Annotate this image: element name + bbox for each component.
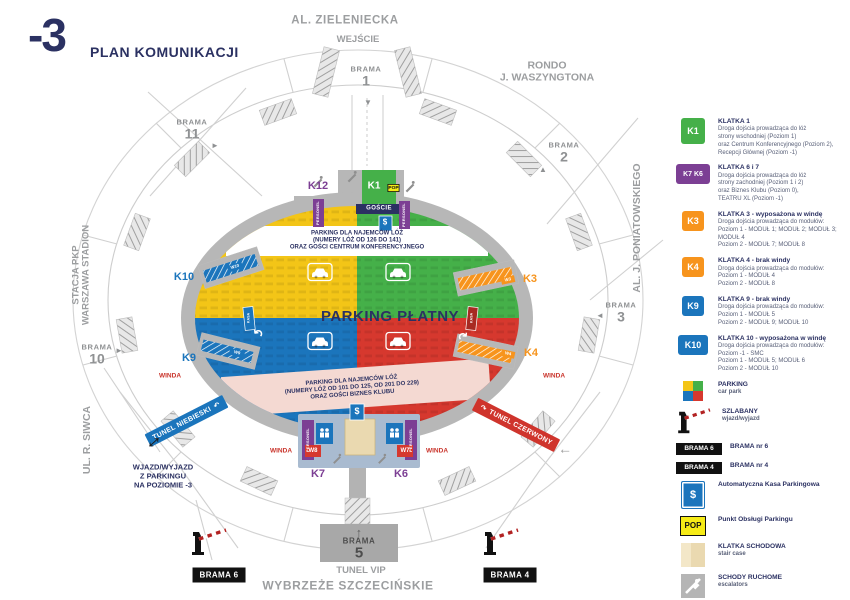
legend-line: Poziom 2 - MODUŁ 10 — [718, 366, 848, 374]
k3-icon: K3 — [676, 211, 710, 231]
tunel-vip-label: TUNEL VIP — [336, 566, 385, 576]
legend-title: KLATKA 10 - wyposażona w windę — [718, 335, 848, 343]
winda-k4-label: WINDA — [543, 372, 565, 379]
legend-title: KLATKA SCHODOWA — [718, 543, 848, 551]
barrier-gate4 — [484, 530, 518, 555]
legend-line: Poziom 2 - MODUŁ 8 — [718, 281, 848, 289]
personel-ne: PERSONEL — [402, 203, 407, 227]
legend-line: strony zachodniej (Poziom 1 i 2) — [718, 180, 848, 188]
legend-line: Droga dojścia prowadząca do lóż — [718, 126, 848, 134]
legend-line: Droga dojścia prowadząca do modułów: — [718, 266, 848, 274]
legend-line: strony wschodniej (Poziom 1) — [718, 134, 848, 142]
gate-6-badge: BRAMA 6 — [193, 568, 246, 583]
legend-item-szlaban: SZLABANYwjazd/wyjazd — [676, 408, 848, 436]
legend-item-k10: K10KLATKA 10 - wyposażona w windęDroga d… — [676, 335, 848, 374]
legend-title: BRAMA nr 6 — [730, 443, 848, 451]
page-level: -3 — [28, 8, 65, 62]
street-pkp: STACJA PKP WARSZAWA STADION — [72, 225, 93, 325]
schody-icon — [676, 574, 710, 598]
k67-icon: K7 K6 — [676, 164, 710, 184]
legend-line: escalators — [718, 582, 848, 590]
parking-platny-label: PARKING PŁATNY — [321, 309, 459, 326]
k9-label: K9 — [182, 352, 196, 364]
legend-item-brama6: BRAMA 6BRAMA nr 6 — [676, 443, 848, 455]
street-wejscie: WEJŚCIE — [337, 35, 380, 45]
legend-title: Automatyczna Kasa Parkingowa — [718, 481, 848, 489]
legend-item-schody: SCHODY RUCHOMEescalators — [676, 574, 848, 598]
gate-4-badge: BRAMA 4 — [484, 568, 537, 583]
personel-nw: PERSONEL — [316, 201, 321, 225]
legend-line: oraz Centrum Konferencyjnego (Poziom 2), — [718, 142, 848, 150]
gate-11: BRAMA11 — [177, 118, 208, 140]
k4-label: K4 — [524, 347, 538, 359]
brama4-icon: BRAMA 4 — [676, 462, 722, 474]
staircase-core — [345, 419, 375, 455]
gosci-label: GOŚCIE — [366, 206, 392, 213]
legend-line: TEATRU XL (Poziom -1) — [718, 196, 848, 204]
gate-10-arrow-icon: ► — [115, 347, 123, 355]
legend-line: Poziom 1 - MODUŁ 5; MODUŁ 6 — [718, 358, 848, 366]
k9-icon: K9 — [676, 296, 710, 316]
gate-1: BRAMA1 — [351, 65, 382, 87]
legend-line: Droga dojścia prowadząca do modułów: — [718, 304, 848, 312]
tunnel-red-arrow-icon: ↶ — [479, 403, 488, 413]
street-wybrzeze: WYBRZEŻE SZCZECIŃSKIE — [262, 579, 433, 592]
street-poniatowskiego: AL. J. PONIATOWSKIEGO — [632, 163, 644, 292]
legend-line: Poziom 2 - MODUŁ 9; MODUŁ 10 — [718, 320, 848, 328]
szlaban-icon — [676, 408, 714, 436]
k4-icon: K4 — [676, 257, 710, 277]
gate-3: BRAMA3 — [606, 301, 637, 323]
personel-sw: PERSONEL — [306, 428, 311, 452]
winda-w8-label: WINDA — [270, 447, 292, 454]
k6-label: K6 — [394, 468, 408, 480]
page-title: PLAN KOMUNIKACJI — [90, 44, 239, 60]
street-zieleniecka: AL. ZIELENIECKA — [291, 15, 398, 28]
legend-line: Recepcji Głównej (Poziom -1) — [718, 150, 848, 158]
wjazd-text: WJAZD/WYJAZD Z PARKINGU NA POZIOMIE -3 — [133, 463, 193, 490]
k1-label: K1 — [368, 181, 381, 192]
legend-item-k9: K9KLATKA 9 - brak windyDroga dojścia pro… — [676, 296, 848, 328]
legend-line: Poziom -1 - SMC — [718, 351, 848, 359]
personel-se: PERSONEL — [409, 428, 414, 452]
legend-title: KLATKA 1 — [718, 118, 848, 126]
winda-w7-label: WINDA — [426, 447, 448, 454]
winda-k9-label: WINDA — [159, 372, 181, 379]
legend-title: KLATKA 4 - brak windy — [718, 257, 848, 265]
legend-item-k3: K3KLATKA 3 - wyposażona w windęDroga doj… — [676, 211, 848, 250]
kasa-top-symbol: $ — [383, 219, 387, 228]
gate-1-arrow-icon: ▼ — [364, 99, 372, 107]
legend-line: Droga dojścia prowadząca do modułów: — [718, 219, 848, 227]
legend-line: Droga dojścia prowadząca do lóż — [718, 173, 848, 181]
k3-label: K3 — [523, 273, 537, 285]
gate-11-arrow-icon: ► — [211, 142, 219, 150]
street-rondo: RONDO J. WASZYNGTONA — [500, 60, 594, 83]
legend-line: oraz Biznes Klubu (Poziom 0), — [718, 188, 848, 196]
legend-item-kasa: $Automatyczna Kasa Parkingowa — [676, 481, 848, 509]
legend-line: wjazd/wyjazd — [722, 416, 848, 424]
kasa-right-text: KASA — [470, 313, 474, 323]
legend-title: PARKING — [718, 381, 848, 389]
kasa-left-text: KASA — [247, 313, 251, 323]
legend-title: KLATKA 6 i 7 — [718, 164, 848, 172]
stadium-parking-plan: -3 PLAN KOMUNIKACJI AL. ZIELENIECKA WEJŚ… — [0, 0, 850, 600]
gate-2: BRAMA2 — [549, 141, 580, 163]
k10-label: K10 — [174, 271, 194, 283]
gate-3-arrow-icon: ◄ — [596, 312, 604, 320]
tunnel-blue-arrow-icon: ↶ — [212, 400, 221, 410]
tunnel-red-exit-arrow-icon: ← — [558, 441, 572, 456]
k10-icon: K10 — [676, 335, 710, 355]
legend-item-k1: K1KLATKA 1Droga dojścia prowadząca do ló… — [676, 118, 848, 157]
k7-label: K7 — [311, 468, 325, 480]
brama6-icon: BRAMA 6 — [676, 443, 722, 455]
gate-2-arrow-icon: ▲ — [539, 166, 547, 174]
band-top-text: PARKING DLA NAJEMCÓW LÓŻ (NUMERY LÓŻ OD … — [232, 231, 482, 252]
kasa-south-symbol: $ — [354, 407, 359, 417]
klatka-icon — [676, 543, 710, 567]
legend-title: KLATKA 3 - wyposażona w windę — [718, 211, 848, 219]
pop-tag: POP — [388, 184, 400, 192]
legend-item-pop: POPPunkt Obsługi Parkingu — [676, 516, 848, 536]
legend-line: Poziom 2 - MODUŁ 7; MODUŁ 8 — [718, 242, 848, 250]
legend-title: BRAMA nr 4 — [730, 462, 848, 470]
barrier-gate6 — [192, 530, 226, 555]
legend: K1KLATKA 1Droga dojścia prowadząca do ló… — [676, 118, 848, 600]
legend-line: Poziom 1 - MODUŁ 5 — [718, 312, 848, 320]
k12-label: K12 — [308, 180, 328, 192]
legend-line: Poziom 1 - MODUŁ 4 — [718, 273, 848, 281]
legend-item-brama4: BRAMA 4BRAMA nr 4 — [676, 462, 848, 474]
gate-10: BRAMA10 — [82, 343, 113, 365]
pop-icon: POP — [676, 516, 710, 536]
k1-icon: K1 — [676, 118, 710, 144]
legend-line: Droga dojścia prowadząca do modułów: — [718, 343, 848, 351]
parking-icon — [676, 381, 710, 401]
kasa-icon: $ — [676, 481, 710, 509]
legend-title: KLATKA 9 - brak windy — [718, 296, 848, 304]
legend-item-klatka: KLATKA SCHODOWAstair case — [676, 543, 848, 567]
street-siwca: UL. R. SIWCA — [82, 406, 94, 474]
legend-item-parking: PARKINGcar park — [676, 381, 848, 401]
legend-title: SCHODY RUCHOME — [718, 574, 848, 582]
legend-title: SZLABANY — [722, 408, 848, 416]
legend-line: car park — [718, 389, 848, 397]
legend-item-k67: K7 K6KLATKA 6 i 7Droga dojścia prowadząc… — [676, 164, 848, 203]
legend-item-k4: K4KLATKA 4 - brak windyDroga dojścia pro… — [676, 257, 848, 289]
legend-title: Punkt Obsługi Parkingu — [718, 516, 848, 524]
gate-5: BRAMA 5 — [343, 538, 376, 561]
legend-line: stair case — [718, 551, 848, 559]
legend-line: Poziom 1 - MODUŁ 1; MODUŁ 2; MODUŁ 3; MO… — [718, 227, 848, 243]
